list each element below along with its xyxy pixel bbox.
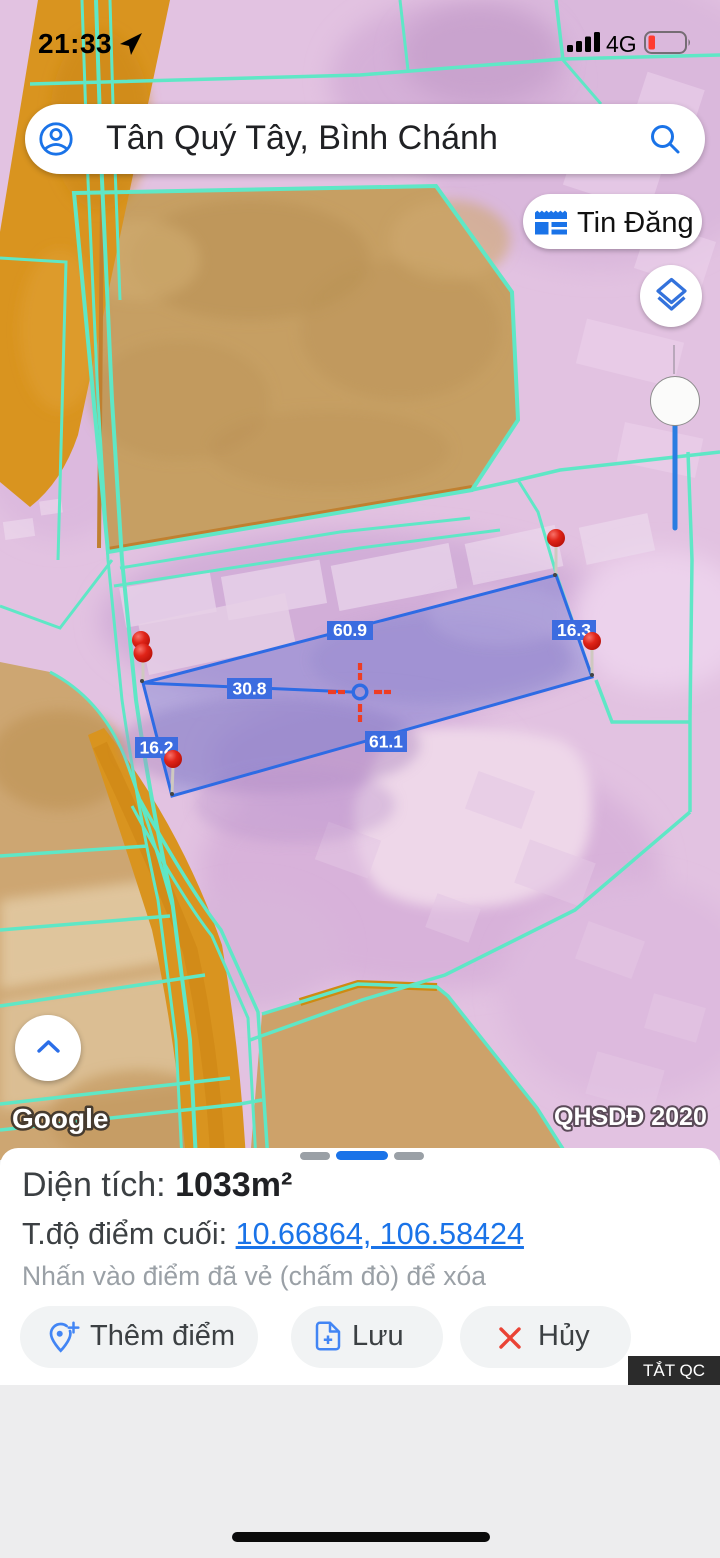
svg-text:60.9: 60.9	[333, 620, 367, 640]
svg-text:30.8: 30.8	[232, 679, 266, 699]
svg-text:QHSDĐ 2020: QHSDĐ 2020	[554, 1103, 707, 1131]
svg-text:Google: Google	[12, 1103, 108, 1134]
svg-text:61.1: 61.1	[369, 732, 403, 752]
